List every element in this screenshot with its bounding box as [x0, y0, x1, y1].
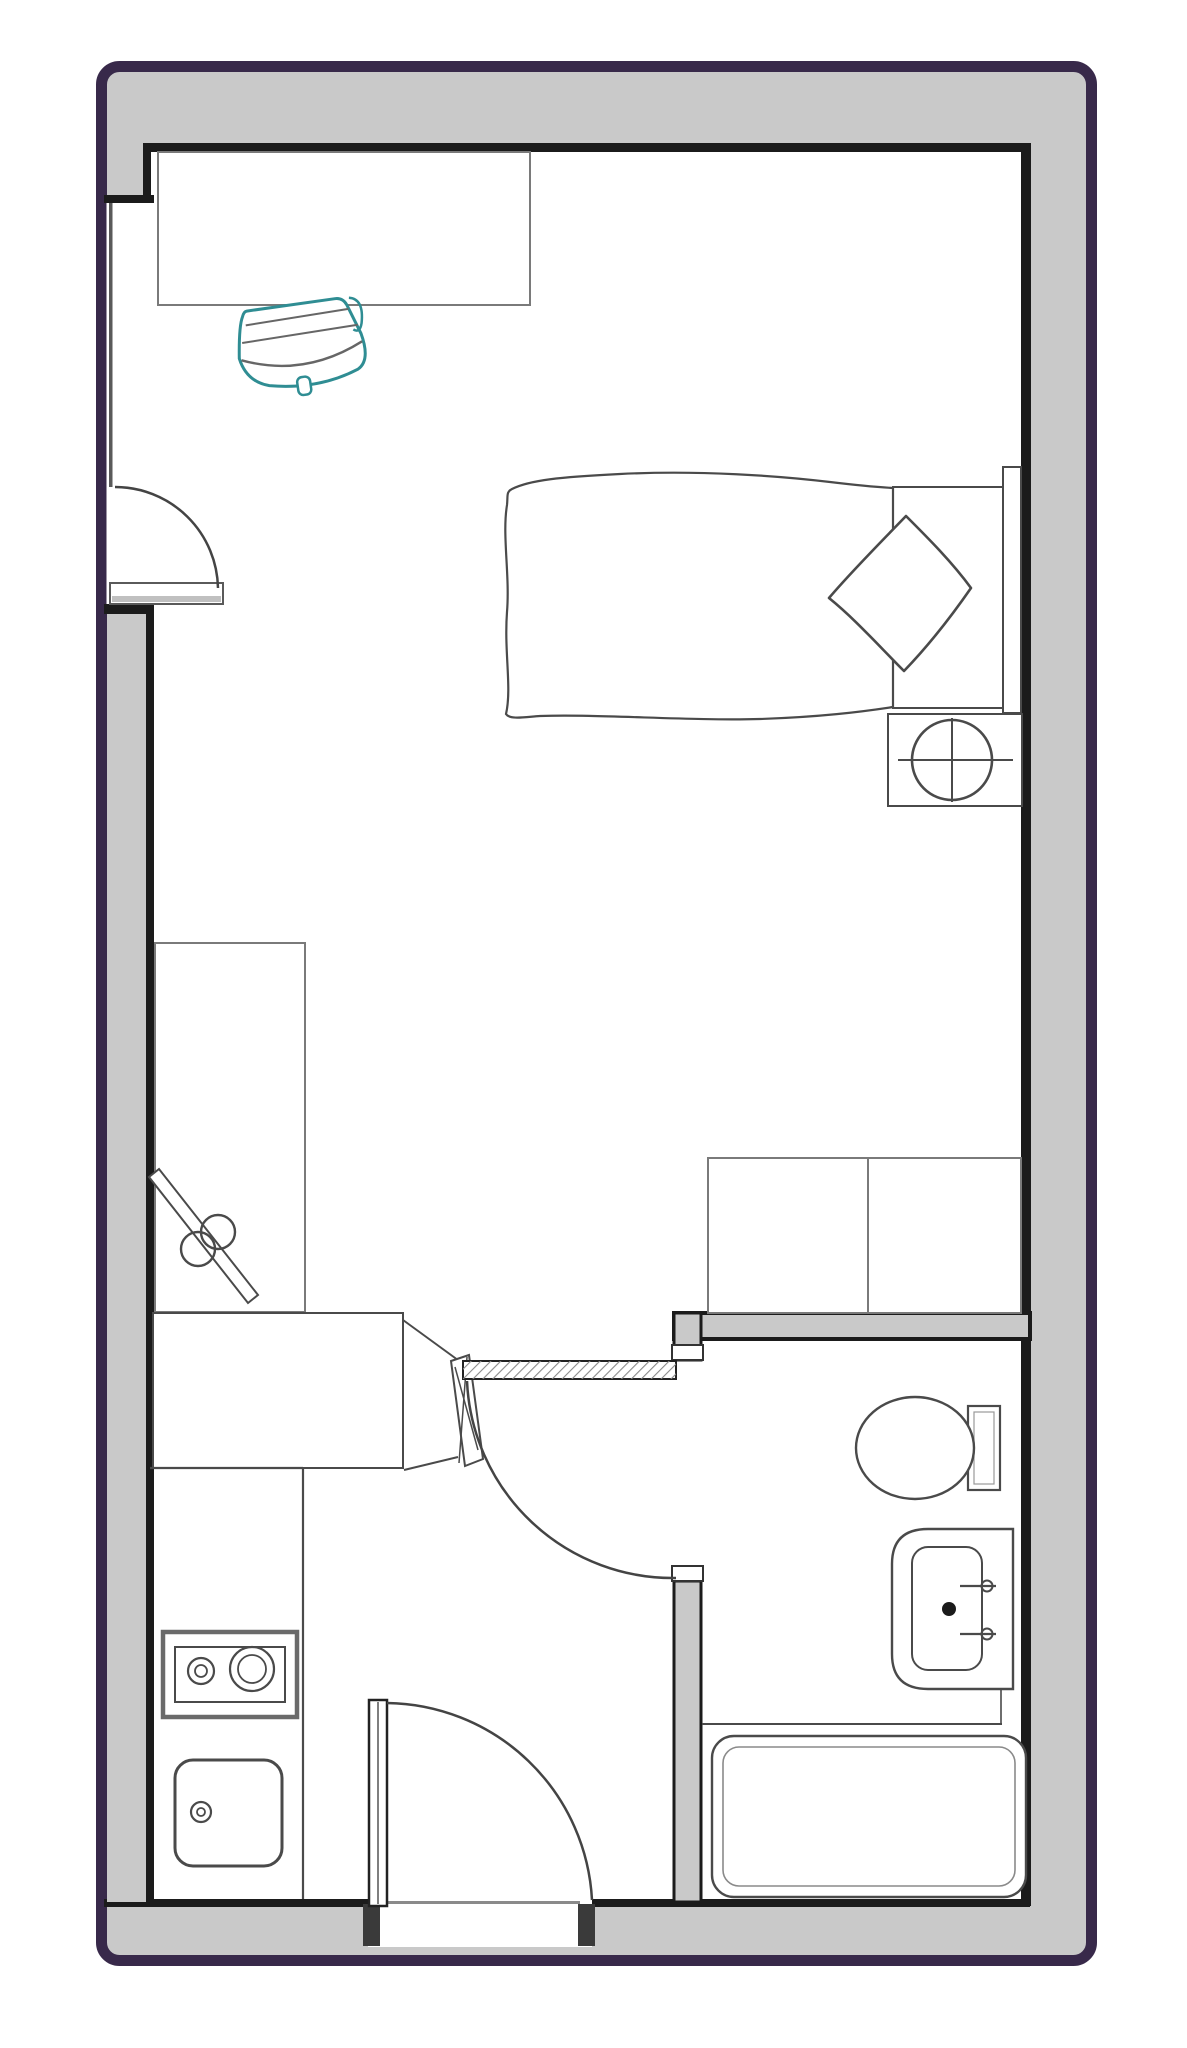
bathtub [712, 1736, 1026, 1897]
toilet [856, 1397, 1000, 1499]
bathroom-door-leaf-hatch [463, 1361, 676, 1379]
bench-units [708, 1158, 1021, 1313]
wash-basin-faucet [942, 1602, 956, 1616]
desk [158, 152, 530, 305]
toilet-bowl [856, 1397, 974, 1499]
right-wall-inner-line [1021, 143, 1031, 1906]
bed [505, 467, 1021, 719]
wardrobe-body [155, 943, 305, 1312]
bed-headboard [1003, 467, 1021, 713]
door-stub-wall [104, 604, 154, 614]
bathroom-left-wall-lower [674, 1581, 701, 1902]
entry-opening [363, 1899, 595, 1947]
entry-jamb-right [578, 1904, 595, 1946]
second-desk [153, 1313, 403, 1468]
floor-plan-canvas: Studio apartment floor plan [0, 0, 1187, 2048]
bench-unit-right [868, 1158, 1021, 1313]
left-thick-wall-edge [146, 610, 154, 1902]
cooktop [163, 1632, 297, 1717]
entry-opening-gap [368, 1899, 592, 1947]
left-thick-wall [107, 612, 147, 1902]
top-wall-inner-line [143, 143, 1030, 152]
bench-unit-left [708, 1158, 868, 1313]
corner-wall-block-edge-bottom [104, 195, 154, 203]
bathroom-top-wall [674, 1313, 1030, 1339]
entry-jamb-left [363, 1904, 380, 1946]
entry-threshold-line [380, 1901, 580, 1904]
left-wall-door-leaf-shade [112, 596, 221, 602]
bathroom-door-jamb-top [672, 1345, 703, 1360]
nightstand [888, 714, 1022, 806]
corner-wall-block [107, 150, 146, 197]
left-thin-wall-line [109, 203, 113, 487]
wardrobe [149, 943, 305, 1312]
wash-basin [892, 1529, 1013, 1689]
bathroom-door-jamb-bottom [672, 1566, 703, 1581]
bathtub-outer [712, 1736, 1026, 1897]
floor-plan-drawing [0, 0, 1187, 2048]
desk-chair-leg [297, 376, 312, 396]
bottom-wall-inner-line-right [592, 1899, 1030, 1907]
kitchen-sink [175, 1760, 282, 1866]
